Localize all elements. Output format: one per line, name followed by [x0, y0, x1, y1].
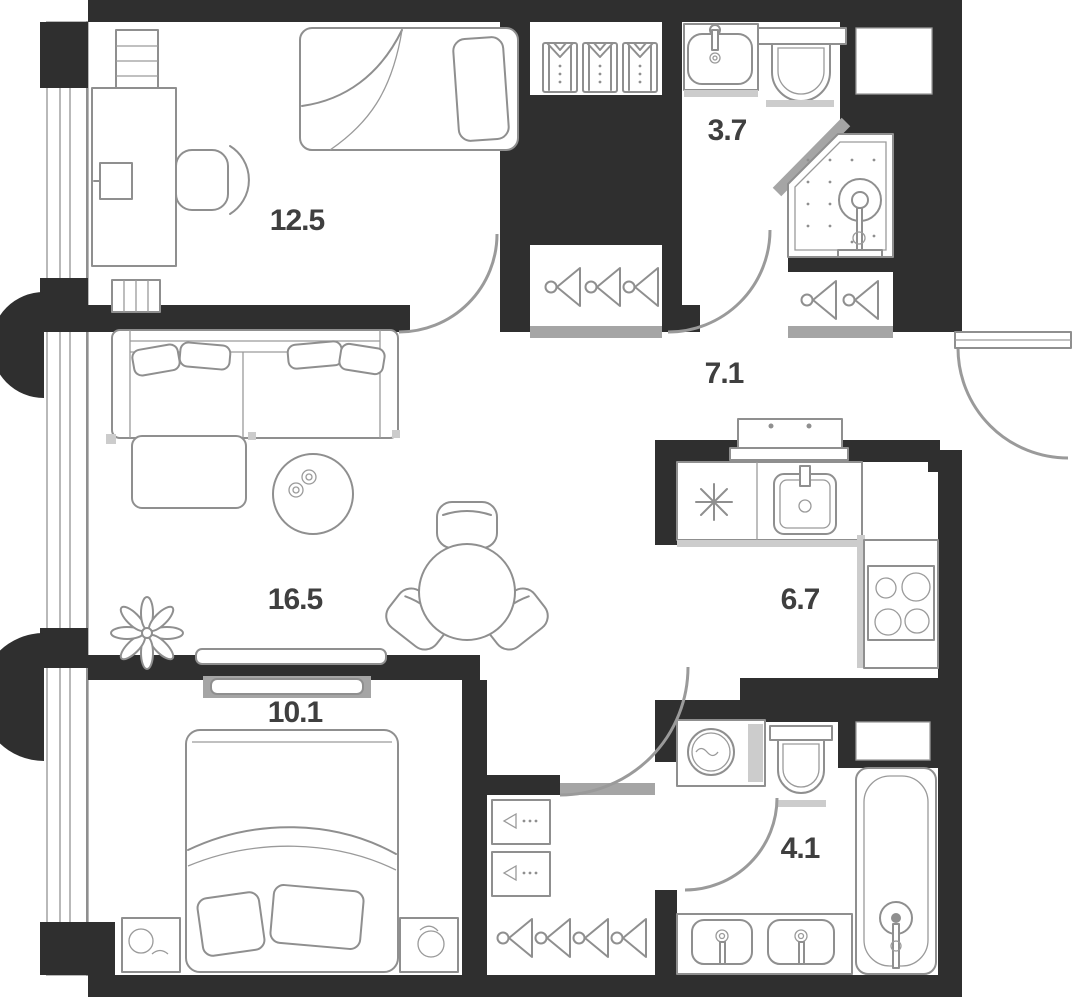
hanger-closet: [802, 281, 879, 319]
vanity-sink-icon: [677, 914, 852, 974]
bed-icon: [186, 730, 398, 972]
room-area-label-bedroom-1: 12.5: [270, 204, 324, 238]
desk-chair-icon: [176, 146, 249, 214]
wardrobe-shirts: [543, 43, 657, 92]
room-area-label-bedroom-2: 10.1: [268, 696, 322, 730]
toilet-icon: [770, 726, 832, 807]
coffee-table-icon: [273, 454, 353, 534]
console-icon: [730, 419, 848, 460]
bed-icon: [300, 28, 518, 150]
column-icon: [0, 633, 44, 761]
hanger-closet: [498, 919, 647, 957]
room-area-label-kitchen: 6.7: [781, 583, 820, 617]
washing-machine-icon: [677, 720, 765, 786]
fridge-snowflake-icon: [696, 484, 732, 520]
window-band-icon: [47, 22, 88, 975]
floor-plan-drawing: [0, 0, 1078, 997]
shower-icon: [777, 122, 893, 257]
room-area-label-bathroom-2: 4.1: [781, 832, 820, 866]
room-area-label-living-room: 16.5: [268, 583, 322, 617]
sink-icon: [684, 24, 758, 97]
room-area-label-bathroom-1: 3.7: [708, 114, 747, 148]
kitchen-sink-icon: [774, 466, 836, 534]
plant-icon: [111, 597, 183, 669]
bathtub-icon: [856, 768, 936, 974]
toilet-icon: [758, 28, 846, 107]
floor-plan: 12.5 3.7 7.1 16.5 6.7 10.1 4.1: [0, 0, 1078, 997]
desk-icon: [92, 88, 176, 266]
stove-icon: [868, 566, 934, 640]
room-area-label-hallway: 7.1: [705, 357, 744, 391]
closet-shelves: [492, 800, 550, 896]
entrance-door: [955, 332, 1071, 458]
column-icon: [0, 292, 44, 398]
dining-table-icon: [380, 502, 554, 656]
sofa-icon: [106, 330, 400, 508]
hanger-closet: [546, 268, 659, 306]
